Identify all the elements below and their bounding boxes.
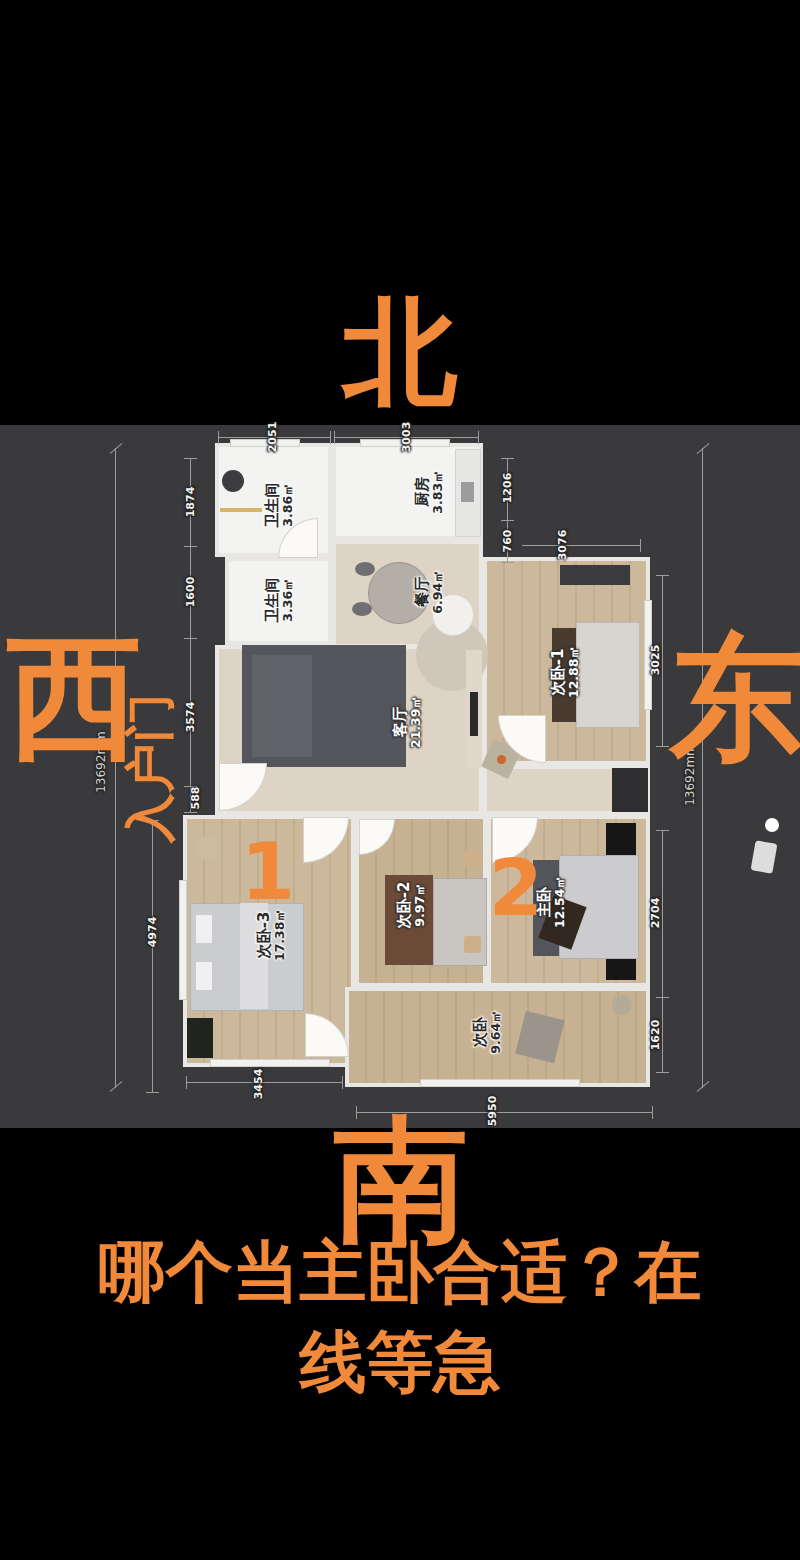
dim-tick [501,458,514,459]
dim-right-2: 2704 [649,898,662,929]
stool [464,850,481,867]
dimension-line [152,820,153,1092]
dim-tick [218,431,219,444]
entrance-door-label: 入户门 [125,693,175,843]
bed [576,622,640,728]
compass-east-label: 东 [670,631,800,766]
dim-left-3: 3574 [184,702,197,733]
room-area: 3.83㎡ [431,470,445,513]
side-table [196,836,220,860]
room-name: 客厅 [392,696,409,748]
room-name: 次卧 [472,1010,489,1053]
room-name: 卫生间 [264,483,281,528]
room-area: 3.86㎡ [281,483,295,528]
room-label-living: 客厅 21.39㎡ [392,696,424,748]
compass-south-label: 南 [334,1113,469,1248]
room-name: 次卧-2 [396,882,413,929]
dim-tick [184,638,197,639]
dim-right-small-2: 760 [501,530,514,553]
dim-tick [656,746,669,747]
video-frame: { "overlay": { "north": "北", "west": "西"… [0,0,800,1560]
dim-top-1: 2051 [266,422,279,453]
dim-tick [656,997,669,998]
dim-tick [330,431,331,444]
room-label-bedroom-1: 次卧-1 12.88㎡ [550,646,582,698]
dim-right-3: 1620 [649,1020,662,1051]
dim-tick [186,1076,187,1089]
wardrobe [560,565,630,585]
dim-tick [501,520,514,521]
dim-bottom-1: 3454 [252,1069,265,1100]
dim-left-1: 1874 [184,487,197,518]
dim-tick [184,458,197,459]
towel-rail [220,508,262,512]
room-area: 12.54㎡ [553,876,567,928]
option-1-mark: 1 [241,833,295,911]
window [420,1079,580,1087]
tv [470,692,478,736]
room-area: 3.36㎡ [281,578,295,623]
room-name: 次卧-1 [550,646,567,698]
caption-line-1: 哪个当主卧合适？在 [99,1239,702,1306]
dim-tick [146,1092,159,1093]
room-label-dining: 餐厅 6.94㎡ [414,570,446,613]
dim-tick [342,1076,343,1089]
toilet-icon [222,470,244,492]
window [210,1059,330,1067]
kitchen-sink [461,482,474,502]
pillow [196,915,212,943]
dim-tick [184,546,197,547]
option-2-mark: 2 [489,849,543,927]
room-area: 9.64㎡ [489,1010,503,1053]
dim-left-5: 4974 [146,917,159,948]
room-name: 厨房 [414,470,431,513]
plant [612,995,632,1015]
dim-right-small-1: 1206 [501,473,514,504]
sofa-cushions [252,655,312,757]
dim-tick [656,1072,669,1073]
dimension-line [662,575,663,746]
room-area: 9.97㎡ [413,882,427,929]
dim-tick [501,562,514,563]
dim-tick [656,830,669,831]
dim-left-4: 588 [189,787,202,810]
dimension-line [662,830,663,1072]
nightstand [606,823,636,857]
dim-tick [184,812,197,813]
room-label-bathroom-2: 卫生间 3.36㎡ [264,578,296,623]
dim-bottom-2: 5950 [486,1096,499,1127]
room-label-kitchen: 厨房 3.83㎡ [414,470,446,513]
caption-line-2: 线等急 [300,1329,501,1396]
room-label-bedroom-2: 次卧-2 9.97㎡ [396,882,428,929]
room-area: 21.39㎡ [409,696,423,748]
window [179,880,187,1000]
ui-dot [765,818,779,832]
room-area: 6.94㎡ [431,570,445,613]
dim-right-small-3: 3076 [556,530,569,561]
room-label-bedroom-south: 次卧 9.64㎡ [472,1010,504,1053]
dim-tick [478,431,479,444]
dim-tick [656,575,669,576]
stool [464,936,481,953]
dining-chair [355,562,375,576]
room-name: 餐厅 [414,570,431,613]
dim-top-2: 3003 [400,422,413,453]
room-name: 卫生间 [264,578,281,623]
dim-tick [334,431,335,444]
dim-right-1: 3025 [649,645,662,676]
dim-tick [652,1106,653,1119]
plant-flower [497,755,506,764]
dim-left-2: 1600 [184,577,197,608]
pillow [196,962,212,990]
room-label-bathroom-1: 卫生间 3.86㎡ [264,483,296,528]
room-area: 12.88㎡ [567,646,581,698]
picture-frame [187,1018,213,1058]
dim-tick [640,539,641,552]
dining-chair [352,602,372,616]
dimension-line [522,545,640,546]
closet [612,768,648,812]
compass-north-label: 北 [343,295,458,410]
